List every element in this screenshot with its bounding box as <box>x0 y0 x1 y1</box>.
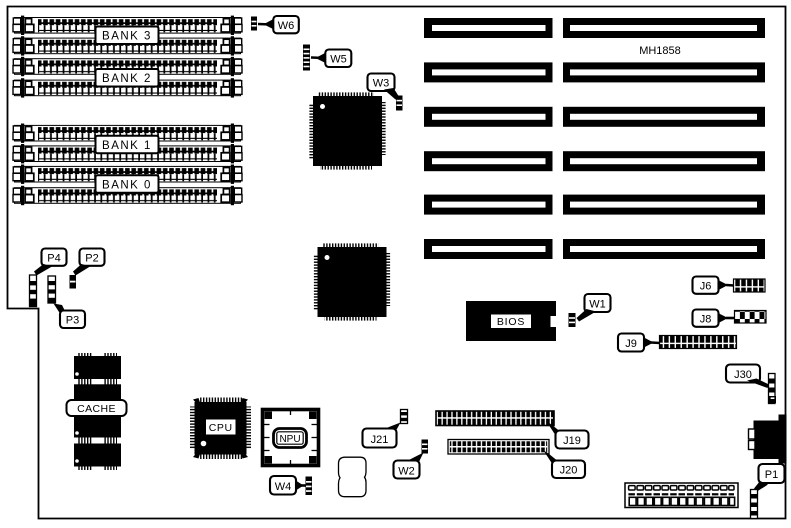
svg-text:BANK 1: BANK 1 <box>102 140 152 152</box>
svg-text:NPU: NPU <box>279 434 300 445</box>
svg-text:P1: P1 <box>765 469 778 481</box>
svg-text:P4: P4 <box>47 253 60 265</box>
svg-text:J30: J30 <box>734 369 752 381</box>
svg-text:J21: J21 <box>371 434 389 446</box>
svg-text:P2: P2 <box>85 253 98 265</box>
svg-text:BANK 0: BANK 0 <box>102 179 152 191</box>
svg-text:BANK 3: BANK 3 <box>102 31 152 43</box>
svg-text:CPU: CPU <box>209 422 233 434</box>
svg-text:W3: W3 <box>373 78 390 90</box>
svg-text:W1: W1 <box>589 299 606 311</box>
svg-text:J9: J9 <box>625 338 637 350</box>
svg-text:BANK 2: BANK 2 <box>102 73 152 85</box>
svg-text:J20: J20 <box>560 465 578 477</box>
svg-text:P3: P3 <box>66 315 79 327</box>
svg-text:W6: W6 <box>278 20 295 32</box>
svg-text:BIOS: BIOS <box>497 316 525 328</box>
svg-text:CACHE: CACHE <box>77 403 116 415</box>
svg-text:J19: J19 <box>563 435 581 447</box>
svg-text:MH1858: MH1858 <box>639 45 681 57</box>
svg-text:W2: W2 <box>398 465 415 477</box>
svg-text:J8: J8 <box>700 314 712 326</box>
svg-text:J6: J6 <box>700 281 712 293</box>
svg-text:W4: W4 <box>275 481 292 493</box>
svg-text:W5: W5 <box>330 54 347 66</box>
